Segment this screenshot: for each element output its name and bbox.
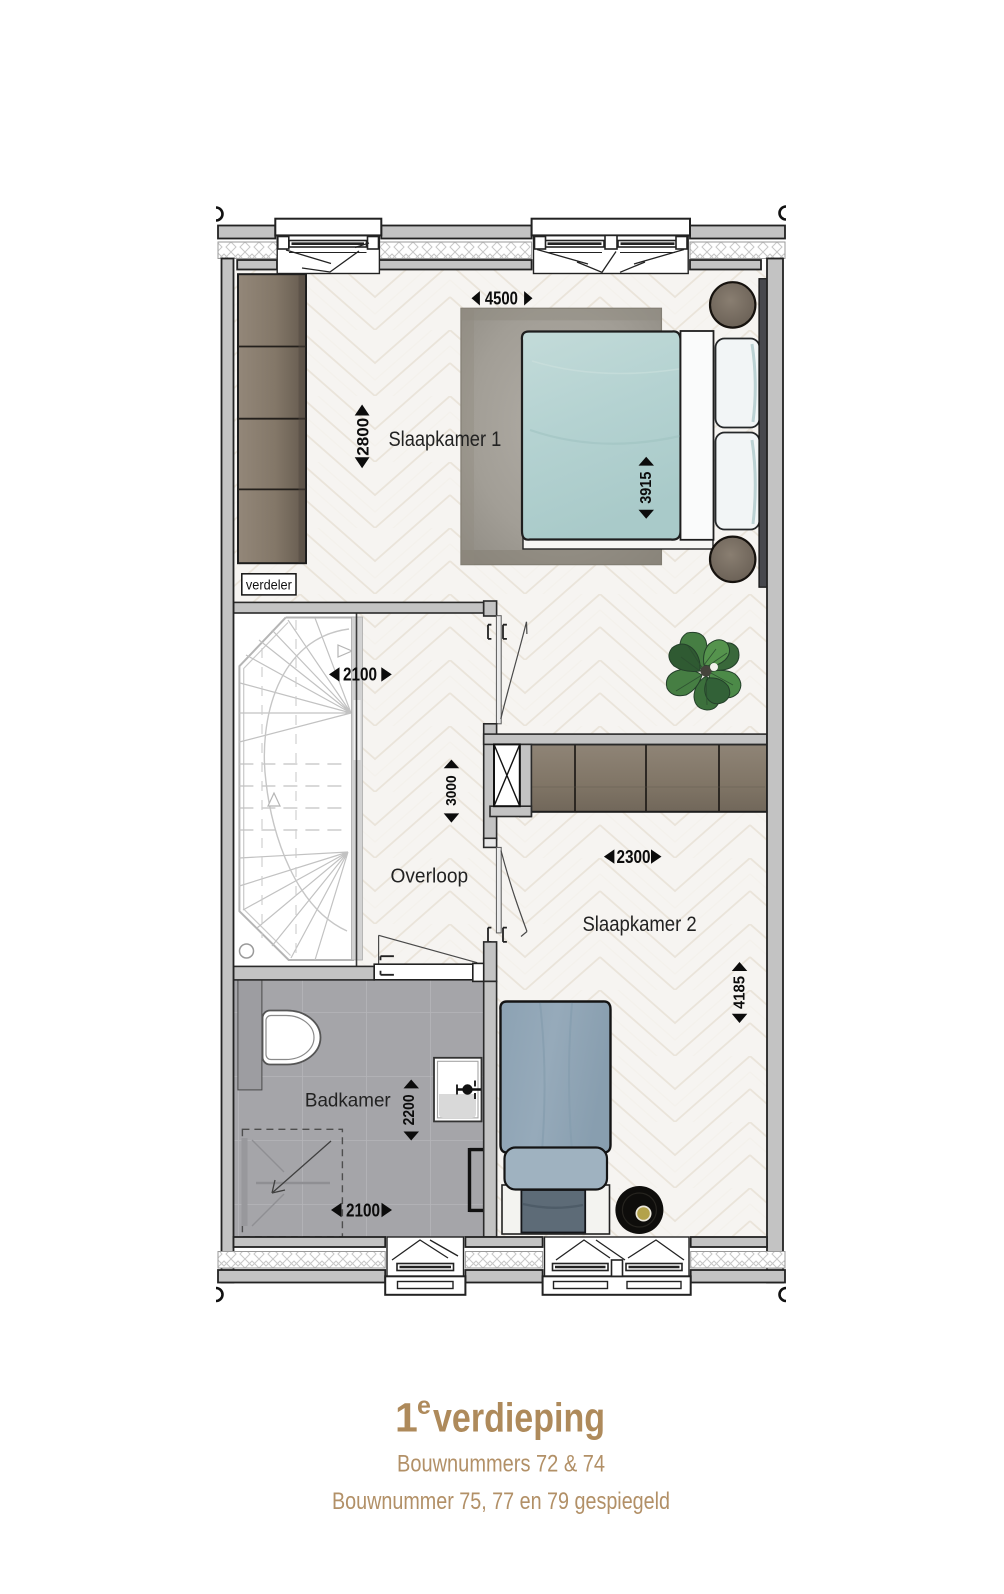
- svg-text:2300: 2300: [617, 847, 651, 867]
- svg-text:4500: 4500: [485, 289, 518, 309]
- svg-text:Bouwnummer 75, 77 en 79 gespie: Bouwnummer 75, 77 en 79 gespiegeld: [332, 1488, 670, 1515]
- svg-text:Slaapkamer 2: Slaapkamer 2: [582, 913, 696, 936]
- svg-text:2100: 2100: [346, 1200, 380, 1220]
- svg-text:3915: 3915: [638, 471, 655, 504]
- svg-text:2800: 2800: [353, 418, 372, 456]
- svg-text:Badkamer: Badkamer: [305, 1089, 391, 1111]
- svg-text:Bouwnummers 72 & 74: Bouwnummers 72 & 74: [397, 1451, 605, 1478]
- svg-text:Slaapkamer 1: Slaapkamer 1: [388, 427, 501, 451]
- svg-text:1: 1: [395, 1395, 418, 1441]
- svg-text:3000: 3000: [443, 775, 460, 806]
- svg-text:e: e: [417, 1392, 431, 1420]
- svg-text:verdeler: verdeler: [246, 576, 292, 592]
- svg-text:verdieping: verdieping: [433, 1395, 605, 1441]
- svg-text:2100: 2100: [343, 665, 377, 685]
- svg-text:2200: 2200: [401, 1094, 418, 1125]
- svg-text:Overloop: Overloop: [391, 865, 469, 887]
- svg-text:4185: 4185: [731, 976, 748, 1009]
